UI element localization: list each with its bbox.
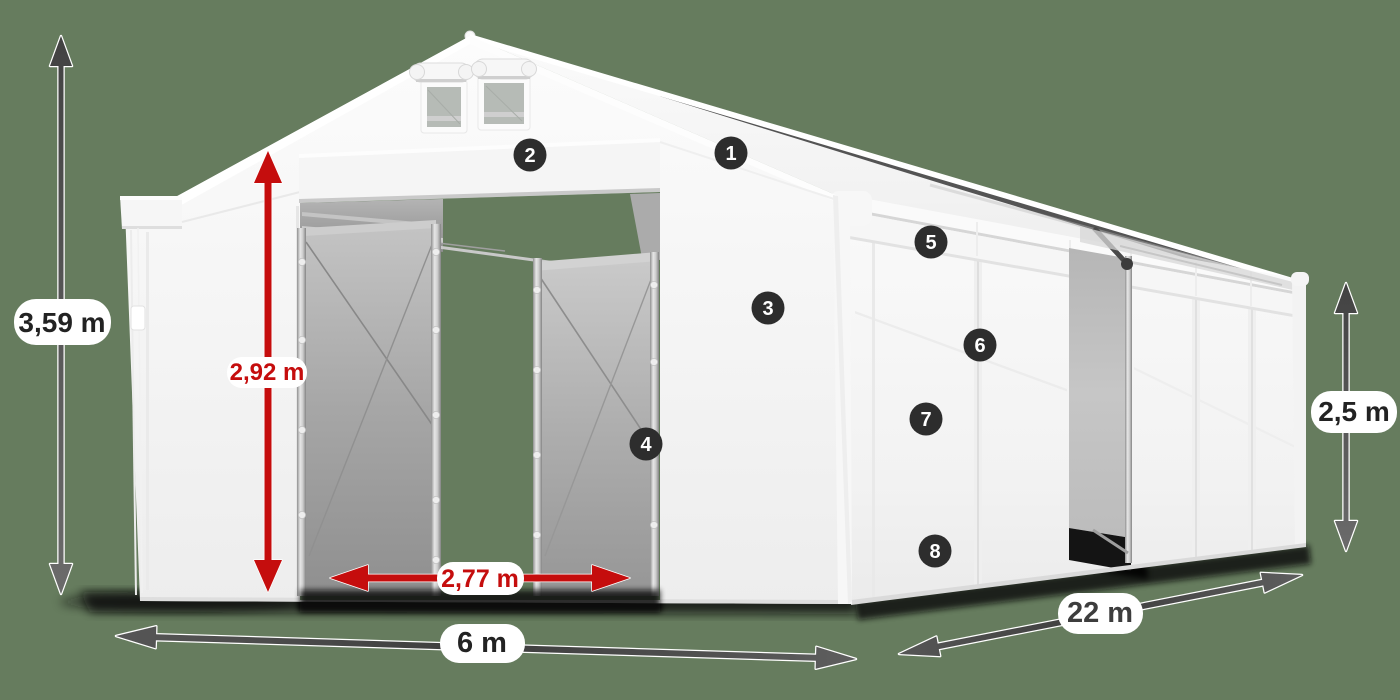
svg-text:2: 2 [524, 145, 535, 167]
svg-text:3,59 m: 3,59 m [18, 307, 105, 338]
svg-text:6: 6 [974, 335, 985, 357]
svg-text:5: 5 [925, 232, 936, 254]
svg-text:6 m: 6 m [457, 627, 507, 659]
svg-text:7: 7 [920, 409, 931, 431]
svg-text:4: 4 [640, 434, 652, 456]
svg-text:2,5 m: 2,5 m [1318, 396, 1390, 427]
svg-text:8: 8 [929, 541, 940, 563]
svg-text:2,77 m: 2,77 m [441, 565, 519, 593]
svg-text:22 m: 22 m [1067, 597, 1133, 629]
svg-text:2,92 m: 2,92 m [230, 359, 305, 386]
svg-text:3: 3 [762, 298, 773, 320]
svg-text:1: 1 [725, 143, 736, 165]
